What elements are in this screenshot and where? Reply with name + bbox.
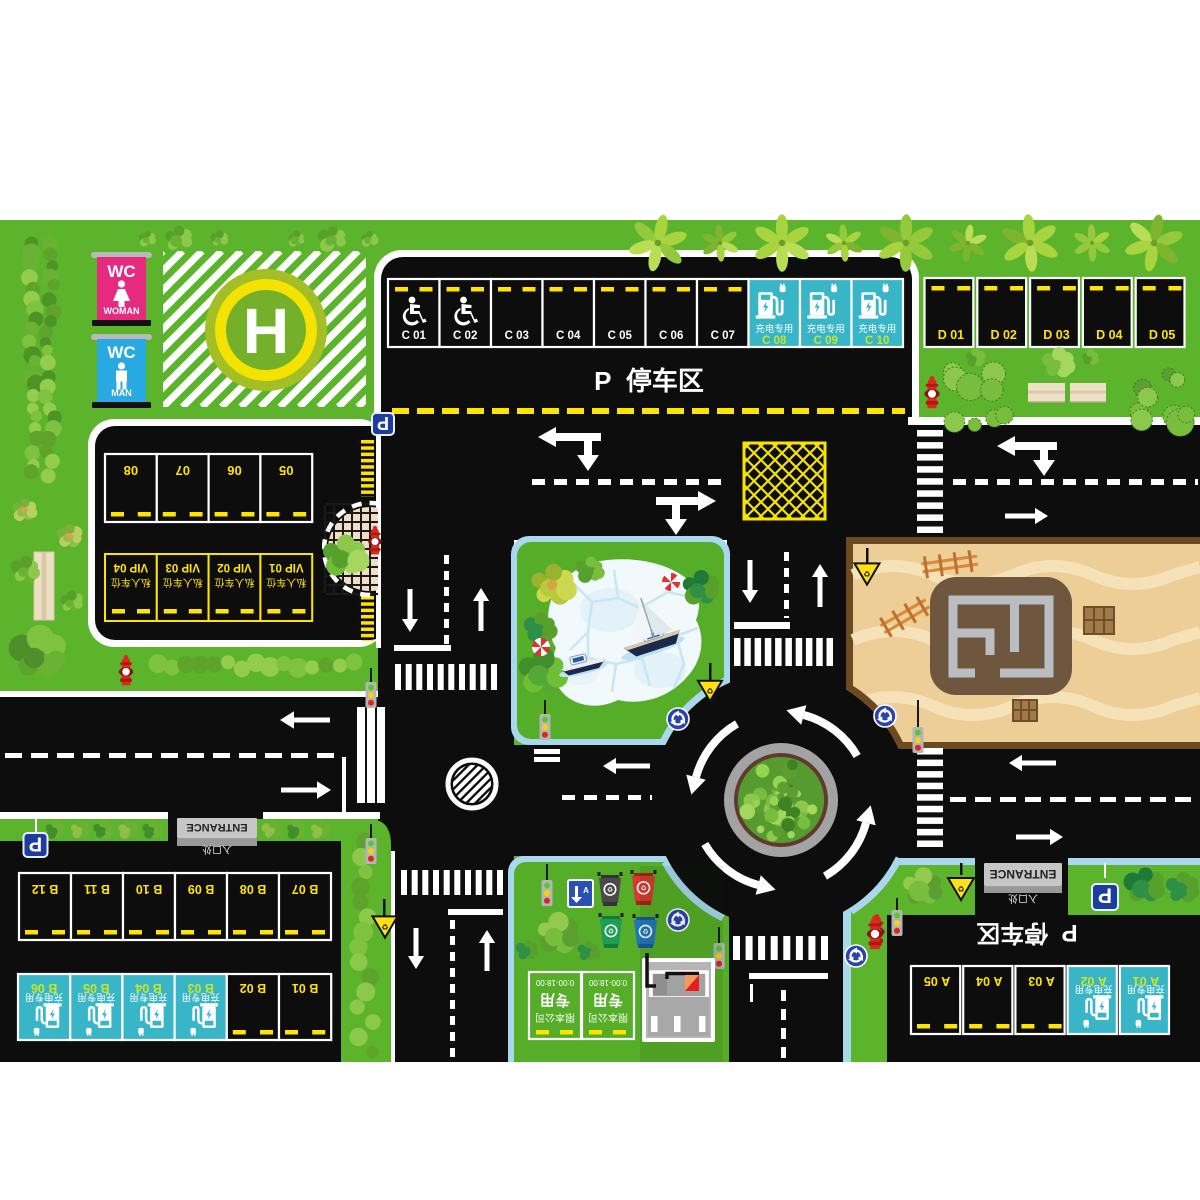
svg-text:B 11: B 11: [84, 882, 110, 896]
svg-text:C 02: C 02: [453, 330, 477, 342]
svg-text:B 07: B 07: [292, 882, 318, 896]
svg-text:07: 07: [175, 463, 189, 478]
svg-text:WOMAN: WOMAN: [104, 306, 140, 316]
svg-text:D 05: D 05: [1149, 328, 1175, 342]
svg-text:♻: ♻: [706, 687, 713, 696]
svg-text:充电专用: 充电专用: [77, 991, 115, 1003]
svg-text:充电专用: 充电专用: [755, 323, 793, 335]
svg-text:D 02: D 02: [990, 328, 1016, 342]
svg-text:C 01: C 01: [402, 330, 427, 342]
svg-text:B 02: B 02: [240, 981, 266, 995]
svg-text:♻: ♻: [957, 885, 964, 894]
svg-text:充电专用: 充电专用: [182, 991, 220, 1003]
svg-text:B 09: B 09: [188, 882, 214, 896]
svg-text:ENTRANCE: ENTRANCE: [990, 867, 1057, 881]
svg-text:P: P: [377, 413, 389, 433]
svg-text:限本公司: 限本公司: [535, 1011, 575, 1024]
svg-text:专用: 专用: [540, 991, 570, 1009]
svg-text:MAN: MAN: [111, 388, 132, 398]
svg-text:♻: ♻: [608, 928, 614, 935]
svg-text:C 05: C 05: [608, 330, 633, 342]
svg-text:专用: 专用: [593, 991, 623, 1009]
svg-text:P 停车区: P 停车区: [976, 919, 1077, 947]
svg-text:VIP 04: VIP 04: [113, 561, 148, 573]
svg-text:P: P: [29, 832, 42, 854]
svg-text:C 03: C 03: [505, 330, 529, 342]
svg-text:私人车位: 私人车位: [111, 576, 151, 589]
svg-text:C 07: C 07: [711, 330, 735, 342]
svg-text:D 01: D 01: [938, 328, 964, 342]
svg-text:B 10: B 10: [136, 882, 162, 896]
svg-text:VIP 02: VIP 02: [217, 561, 252, 573]
svg-text:私人车位: 私人车位: [215, 576, 255, 589]
svg-text:充电专用: 充电专用: [1127, 983, 1165, 995]
svg-text:B 12: B 12: [32, 882, 58, 896]
svg-text:P: P: [1098, 884, 1112, 907]
svg-text:B 01: B 01: [292, 981, 318, 995]
svg-text:C 04: C 04: [556, 330, 581, 342]
svg-text:充电专用: 充电专用: [25, 991, 63, 1003]
svg-text:C 08: C 08: [762, 335, 787, 347]
svg-text:限本公司: 限本公司: [588, 1011, 628, 1024]
svg-text:VIP 01: VIP 01: [268, 561, 303, 573]
svg-text:♻: ♻: [381, 923, 388, 932]
svg-text:私人车位: 私人车位: [163, 576, 203, 589]
svg-text:P 停车区: P 停车区: [594, 366, 704, 396]
svg-text:0:00-18:00: 0:00-18:00: [588, 978, 627, 987]
svg-text:C 06: C 06: [659, 330, 683, 342]
svg-text:A 05: A 05: [924, 974, 950, 988]
svg-text:♻: ♻: [607, 887, 613, 894]
svg-text:A 03: A 03: [1028, 974, 1054, 988]
svg-text:H: H: [243, 295, 289, 367]
svg-text:充电专用: 充电专用: [858, 323, 896, 335]
svg-text:入口处: 入口处: [202, 843, 232, 855]
svg-text:VIP 03: VIP 03: [165, 561, 200, 573]
svg-text:C 09: C 09: [814, 335, 838, 347]
svg-text:♻: ♻: [863, 570, 870, 579]
svg-text:D 03: D 03: [1043, 328, 1069, 342]
svg-text:D 04: D 04: [1096, 328, 1122, 342]
svg-text:A 04: A 04: [976, 974, 1002, 988]
svg-text:充电专用: 充电专用: [807, 323, 845, 335]
svg-text:0:00-18:00: 0:00-18:00: [535, 978, 574, 987]
svg-text:WC: WC: [107, 262, 135, 281]
svg-text:06: 06: [227, 463, 241, 478]
svg-text:私人车位: 私人车位: [266, 576, 306, 589]
svg-text:C 10: C 10: [865, 335, 889, 347]
svg-text:B 08: B 08: [240, 882, 266, 896]
svg-text:ENTRANCE: ENTRANCE: [186, 821, 247, 833]
svg-text:充电专用: 充电专用: [1075, 983, 1113, 995]
svg-text:WC: WC: [107, 343, 135, 362]
svg-text:充电专用: 充电专用: [129, 991, 167, 1003]
svg-text:08: 08: [124, 463, 138, 478]
svg-text:05: 05: [279, 463, 293, 478]
svg-text:入口处: 入口处: [1008, 892, 1038, 904]
svg-text:A: A: [583, 886, 589, 895]
